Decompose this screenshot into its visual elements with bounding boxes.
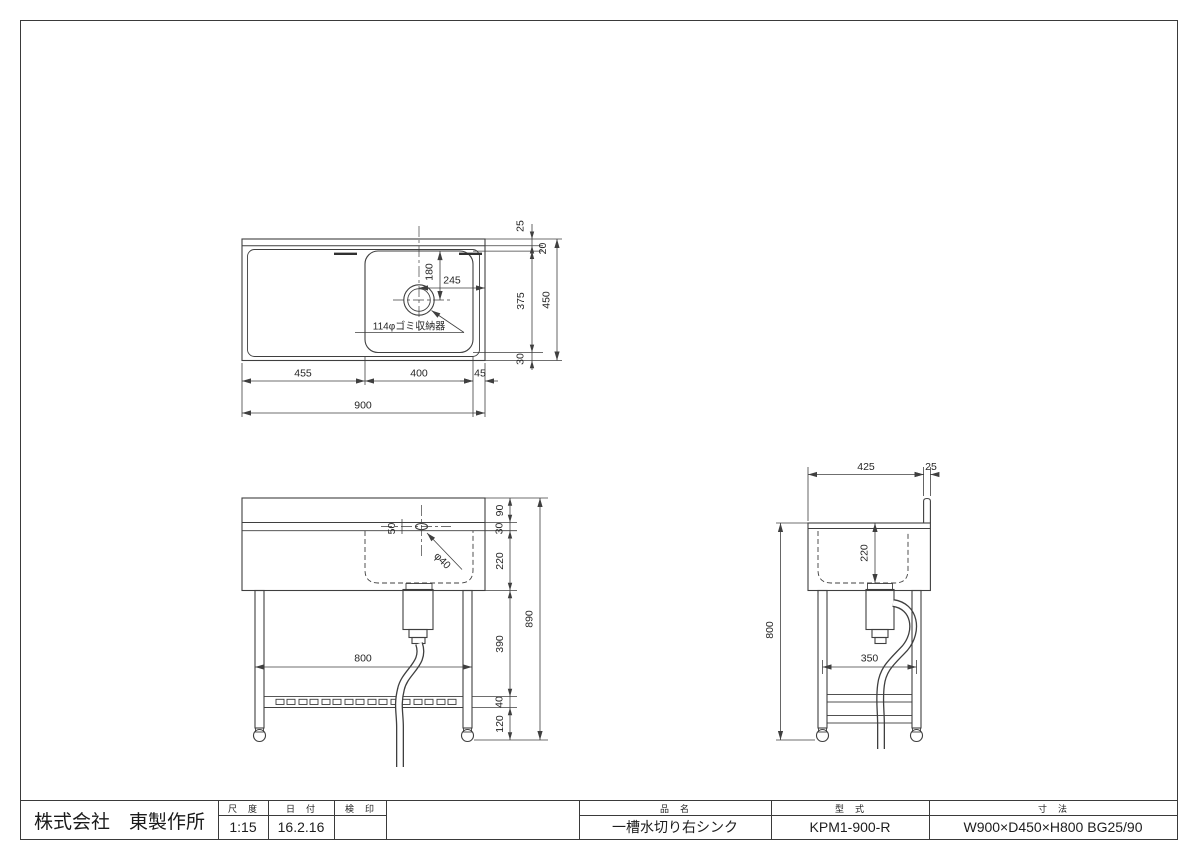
side-back-foot (911, 730, 923, 742)
dim-plan-total-depth: 450 (541, 291, 553, 309)
dim-front-legs: 800 (354, 653, 372, 665)
dim-faucet-hole-dia: φ40 (431, 550, 453, 572)
stamp-value (334, 815, 386, 839)
model-value: KPM1-900-R (771, 815, 929, 839)
backguard-profile (924, 499, 931, 524)
dim-plan-total-width: 900 (354, 400, 372, 412)
dim-plan-left: 455 (294, 368, 312, 380)
dim-side-legs: 350 (861, 653, 879, 665)
dim-plan-bowl-depth: 375 (515, 292, 527, 310)
dim-front-backguard: 90 (494, 505, 506, 517)
scale-column: 尺 度 1:15 (218, 801, 268, 839)
drawing-canvas: 180 245 114φゴミ収納器 455 400 45 900 25 (0, 0, 1200, 849)
dim-side-counter-depth: 425 (857, 461, 875, 473)
date-header: 日 付 (268, 801, 334, 816)
title-block-company: 株式会社 東製作所 (21, 801, 218, 839)
dim-plan-right: 45 (474, 368, 486, 380)
product-name-column: 品 名 一槽水切り右シンク (579, 801, 771, 839)
dim-drain-from-top: 180 (424, 263, 436, 281)
dim-drain-from-right: 245 (443, 275, 461, 287)
front-view: 50 φ40 800 90 30 220 390 40 120 890 (242, 498, 548, 767)
size-value: W900×D450×H800 BG25/90 (929, 815, 1177, 839)
model-column: 型 式 KPM1-900-R (771, 801, 929, 839)
side-view: 425 25 220 350 800 (764, 461, 939, 749)
scale-value: 1:15 (218, 815, 268, 839)
date-value: 16.2.16 (268, 815, 334, 839)
front-left-leg (255, 591, 264, 729)
side-drain-trap (866, 590, 894, 630)
model-header: 型 式 (771, 801, 929, 816)
stamp-column: 検 印 (334, 801, 386, 839)
drain-note-label: 114φゴミ収納器 (373, 320, 445, 333)
dim-front-foot: 120 (494, 715, 506, 733)
dim-side-backguard: 25 (925, 461, 937, 473)
side-back-leg (912, 591, 921, 729)
side-front-leg (818, 591, 827, 729)
size-column: 寸 法 W900×D450×H800 BG25/90 (929, 801, 1177, 839)
dim-front-edge: 30 (494, 523, 506, 535)
side-front-foot (817, 730, 829, 742)
dim-faucet-offset: 50 (386, 523, 398, 535)
dim-front-total-height: 890 (524, 610, 536, 628)
date-column: 日 付 16.2.16 (268, 801, 334, 839)
product-name-header: 品 名 (579, 801, 771, 816)
drawing-sheet: { "title_block": { "company": "株式会社 東製作所… (0, 0, 1200, 849)
dim-plan-bowl-width: 400 (410, 368, 428, 380)
dim-front-bowl: 220 (494, 552, 506, 570)
plan-view: 180 245 114φゴミ収納器 455 400 45 900 25 (242, 220, 562, 417)
scale-header: 尺 度 (218, 801, 268, 816)
stamp-header: 検 印 (334, 801, 386, 816)
dim-front-mid: 390 (494, 635, 506, 653)
size-header: 寸 法 (929, 801, 1177, 816)
front-drain-trap (403, 590, 433, 630)
front-left-foot (254, 730, 266, 742)
dim-plan-gap: 20 (537, 243, 549, 255)
title-block: 株式会社 東製作所 尺 度 1:15 日 付 16.2.16 検 印 品 名 一… (20, 800, 1178, 840)
dim-side-bowl: 220 (859, 544, 871, 562)
dim-front-shelf: 40 (494, 696, 506, 708)
front-right-leg (463, 591, 472, 729)
product-name-value: 一槽水切り右シンク (579, 815, 771, 839)
dim-plan-backguard: 25 (515, 220, 527, 232)
front-right-foot (462, 730, 474, 742)
dim-side-counter-height: 800 (764, 621, 776, 639)
shelf-slots (276, 699, 456, 704)
dim-plan-front: 30 (515, 353, 527, 365)
